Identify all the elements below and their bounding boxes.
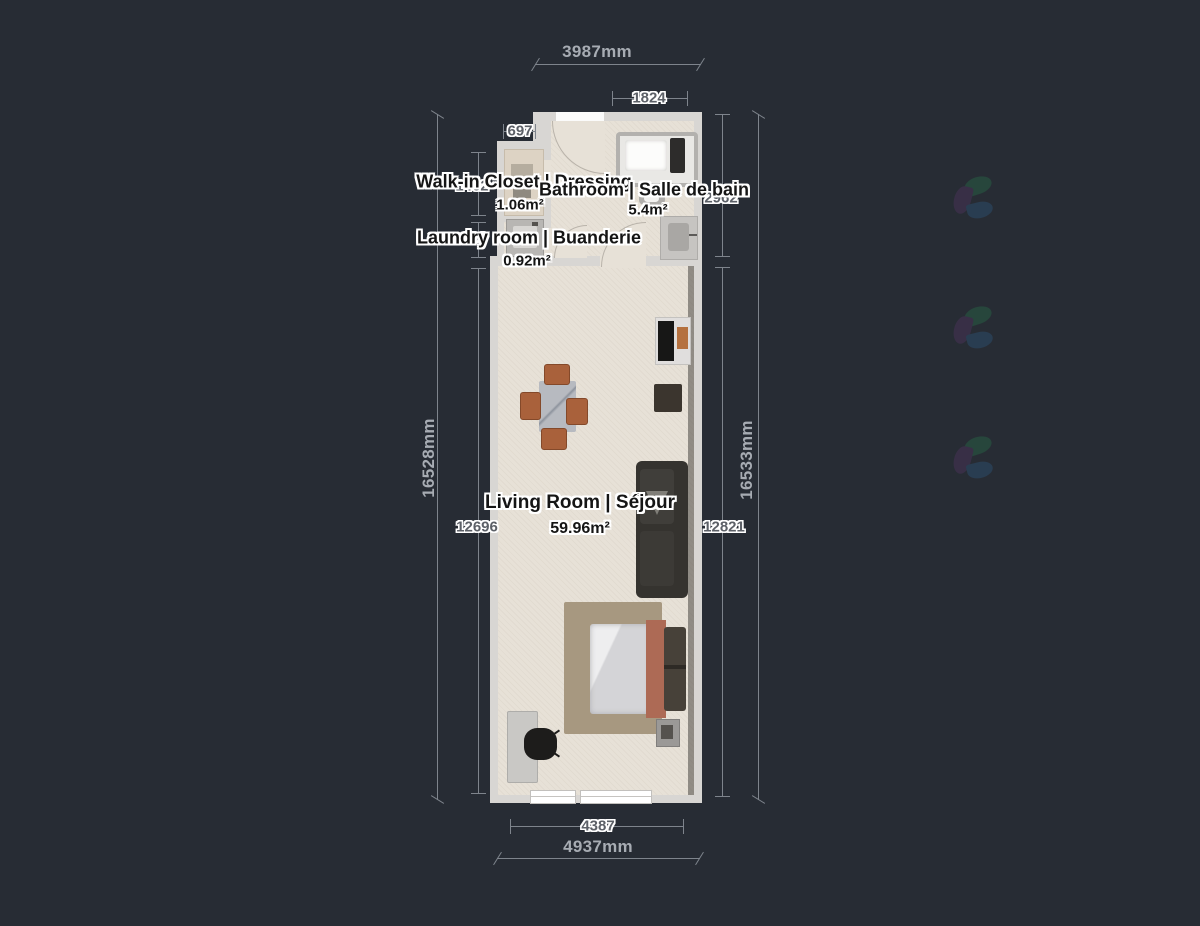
watermark-leaf-logo-1 <box>953 176 993 220</box>
window-bottom-left <box>530 790 576 804</box>
dining-chair-south <box>541 428 567 450</box>
sofa <box>636 461 688 598</box>
bathtub-faucet <box>670 138 685 173</box>
dim-label-bottom-overall: 4937mm <box>563 837 633 857</box>
bathtub-basin <box>625 140 667 171</box>
nightstand <box>656 719 680 747</box>
watermark-leaf-logo-2 <box>953 306 993 350</box>
wall-unit-fireplace <box>655 317 691 365</box>
room-area-laundry: 0.92m² <box>503 253 551 270</box>
dining-chair-north <box>544 364 570 385</box>
dim-label-top-closet: 697 <box>507 123 532 140</box>
shower <box>660 216 698 260</box>
room-label-living: Living Room | Séjour <box>485 492 675 514</box>
office-chair <box>524 728 557 760</box>
dining-chair-west <box>520 392 541 420</box>
sofa-cushion-bottom <box>640 531 674 586</box>
dim-label-left-overall: 16528mm <box>419 418 439 498</box>
side-table <box>654 384 682 412</box>
washing-machine-knob <box>532 222 538 226</box>
dim-label-right-living: 12821 <box>703 519 745 536</box>
room-label-bathroom: Bathroom | Salle de bain <box>539 180 749 201</box>
room-area-living: 59.96m² <box>550 520 610 538</box>
room-label-laundry: Laundry room | Buanderie <box>417 228 641 249</box>
floorplan-canvas: 3987mm 1824 697 16528mm 1462 906 12696 2… <box>0 0 1200 926</box>
fireplace-firebox <box>658 321 674 361</box>
dim-line <box>497 858 700 859</box>
dim-line <box>535 64 701 65</box>
room-area-closet: 1.06m² <box>496 197 544 214</box>
shower-tray <box>668 223 689 251</box>
dim-label-right-overall: 16533mm <box>737 420 757 500</box>
dim-label-top-overall: 3987mm <box>562 42 632 62</box>
shower-handle <box>689 234 697 236</box>
bed-blanket <box>646 620 666 718</box>
bed-duvet <box>590 624 650 714</box>
dim-line <box>758 114 759 800</box>
window-bottom-right <box>580 790 652 804</box>
watermark-leaf-logo-3 <box>953 436 993 480</box>
dim-label-top-bathroom: 1824 <box>632 90 665 107</box>
dim-label-left-living: 12696 <box>456 519 498 536</box>
bed-pillows <box>664 627 686 711</box>
dining-chair-east <box>566 398 588 425</box>
dim-label-bottom-living: 4387 <box>581 818 614 835</box>
nightstand-top <box>661 725 673 739</box>
fireplace-wood-inset <box>677 327 688 349</box>
room-area-bathroom: 5.4m² <box>628 202 667 219</box>
